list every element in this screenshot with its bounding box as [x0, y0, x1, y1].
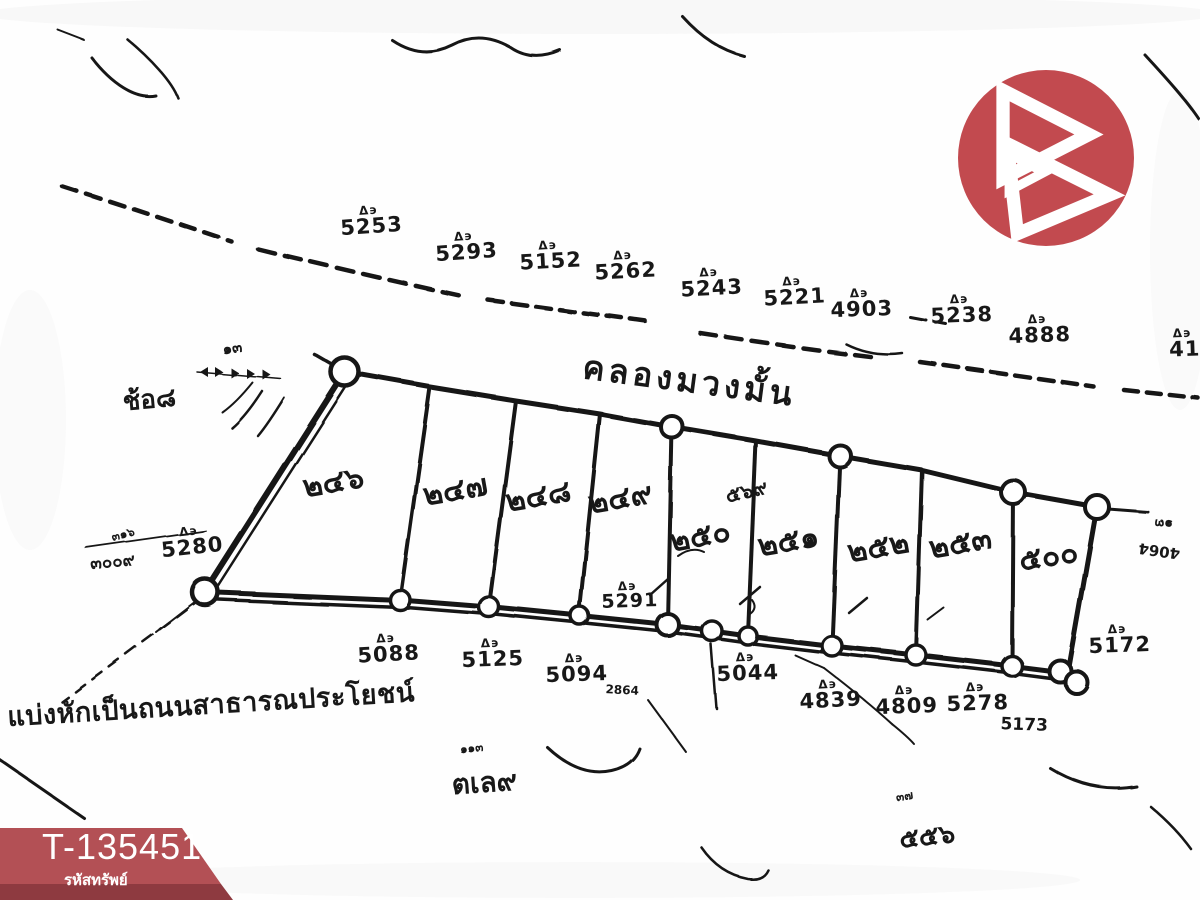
boundary-parcel: Δ϶ 5044 — [716, 649, 780, 686]
small-annotation: ๓๗ — [895, 788, 914, 804]
property-code: T-135451 — [42, 826, 202, 868]
parcel-number: 5044 — [716, 660, 779, 686]
boundary-parcel: Δ϶ 5152 — [518, 236, 582, 274]
plot-number: ๒๔๗ — [420, 468, 490, 514]
parcel-number: 41 — [1169, 336, 1200, 361]
parcel-number: 5280 — [160, 532, 225, 562]
parcel-number: 5221 — [763, 283, 827, 310]
property-code-ribbon: T-135451 รหัสทรัพย์ — [0, 826, 330, 900]
parcel-number: 5278 — [946, 690, 1009, 716]
parcel-number: 5152 — [519, 247, 583, 274]
boundary-parcel: Δ϶ 5172 — [1088, 621, 1152, 658]
parcel-number: 4809 — [875, 693, 938, 719]
boundary-parcel: Δ϶ 5253 — [339, 201, 404, 240]
plot-number: ๒๔๘ — [503, 474, 574, 520]
north-tick-label: ๑๓ — [221, 338, 243, 359]
parcel-number: 5125 — [461, 646, 524, 672]
boundary-parcel: Δ϶ 5221 — [762, 272, 826, 310]
parcel-number: 5293 — [435, 238, 499, 266]
brand-logo-glyph — [958, 70, 1134, 246]
plot-number: ๒๕๑ — [755, 519, 822, 564]
small-annotation: 2864 — [605, 682, 639, 698]
canal-name-label: คลองมวงมั้น — [580, 342, 799, 414]
small-annotation: ๓๐๐๙ — [89, 550, 135, 574]
plot-number: ๒๕๐ — [667, 514, 733, 560]
parcel-number: 5094 — [545, 661, 608, 687]
handwriting-scribble: ๕๕๖ — [898, 819, 957, 855]
property-code-caption: รหัสทรัพย์ — [64, 868, 128, 892]
scale-tick-marks — [196, 366, 280, 379]
boundary-parcel: Δ϶ 5094 — [545, 650, 609, 687]
boundary-parcel: Δ϶ 5238 — [930, 291, 994, 328]
brand-logo — [958, 70, 1134, 246]
boundary-parcel: Δ϶ 4809 — [875, 682, 939, 719]
parcel-number: 5291 — [601, 589, 659, 613]
boundary-parcel: Δ϶ 5280 — [159, 521, 225, 562]
scanned-survey-document: Δ϶ 5253 Δ϶ 5293 Δ϶ 5152 Δ϶ 5262 Δ϶ 5243 … — [0, 0, 1200, 900]
parcel-number: 5253 — [340, 212, 404, 240]
parcel-number: 4839 — [799, 686, 863, 713]
road-dedication-note: แบ่งหักเป็นถนนสาธารณประโยชน์ — [6, 674, 415, 733]
plot-number: ๕๐๐ — [1016, 535, 1080, 579]
parcel-number: 5238 — [930, 302, 993, 328]
plot-overlay-note: ๕๖๙ — [723, 475, 770, 508]
boundary-parcel: Δ϶ 5262 — [593, 246, 657, 284]
boundary-parcel: Δ϶ 4888 — [1008, 311, 1072, 348]
boundary-parcel: Δ϶ 4903 — [830, 285, 894, 322]
handwriting-scribble: ช้อ๘ — [121, 383, 177, 418]
rotated-annotation: ๑๓ — [1154, 516, 1174, 533]
boundary-parcel: Δ϶ 5278 — [946, 679, 1010, 716]
parcel-number: 5262 — [594, 257, 658, 284]
boundary-parcel: Δ϶ 5243 — [679, 263, 743, 301]
plot-number: ๒๕๓ — [926, 521, 994, 566]
handwriting-scribble: ตเล๙ — [451, 764, 519, 801]
parcel-number: 5172 — [1088, 632, 1151, 658]
parcel-number: 5243 — [680, 274, 744, 301]
plot-number: ๒๕๒ — [845, 525, 912, 570]
parcel-number: 5088 — [357, 640, 421, 667]
ribbon-strip — [0, 884, 330, 900]
boundary-parcel: Δ϶ 5125 — [461, 635, 525, 672]
small-annotation: ๑๑๓ — [459, 740, 484, 756]
plot-number: ๒๔๙ — [586, 476, 656, 522]
parcel-number: 5173 — [1000, 714, 1048, 736]
boundary-parcel: Δ϶ 5293 — [434, 227, 499, 266]
parcel-number: 4888 — [1008, 322, 1071, 348]
leader-lines — [648, 644, 914, 752]
road-dashed-line — [62, 594, 205, 702]
plot-number: ๒๔๖ — [300, 460, 367, 505]
parcel-number: 4903 — [830, 296, 893, 322]
boundary-parcel: Δ϶ 5088 — [356, 629, 420, 667]
boundary-parcel: Δ϶ 5291 — [601, 578, 659, 613]
rotated-annotation: 4064 — [1137, 539, 1181, 563]
boundary-parcel: Δ϶ 4839 — [798, 675, 862, 713]
